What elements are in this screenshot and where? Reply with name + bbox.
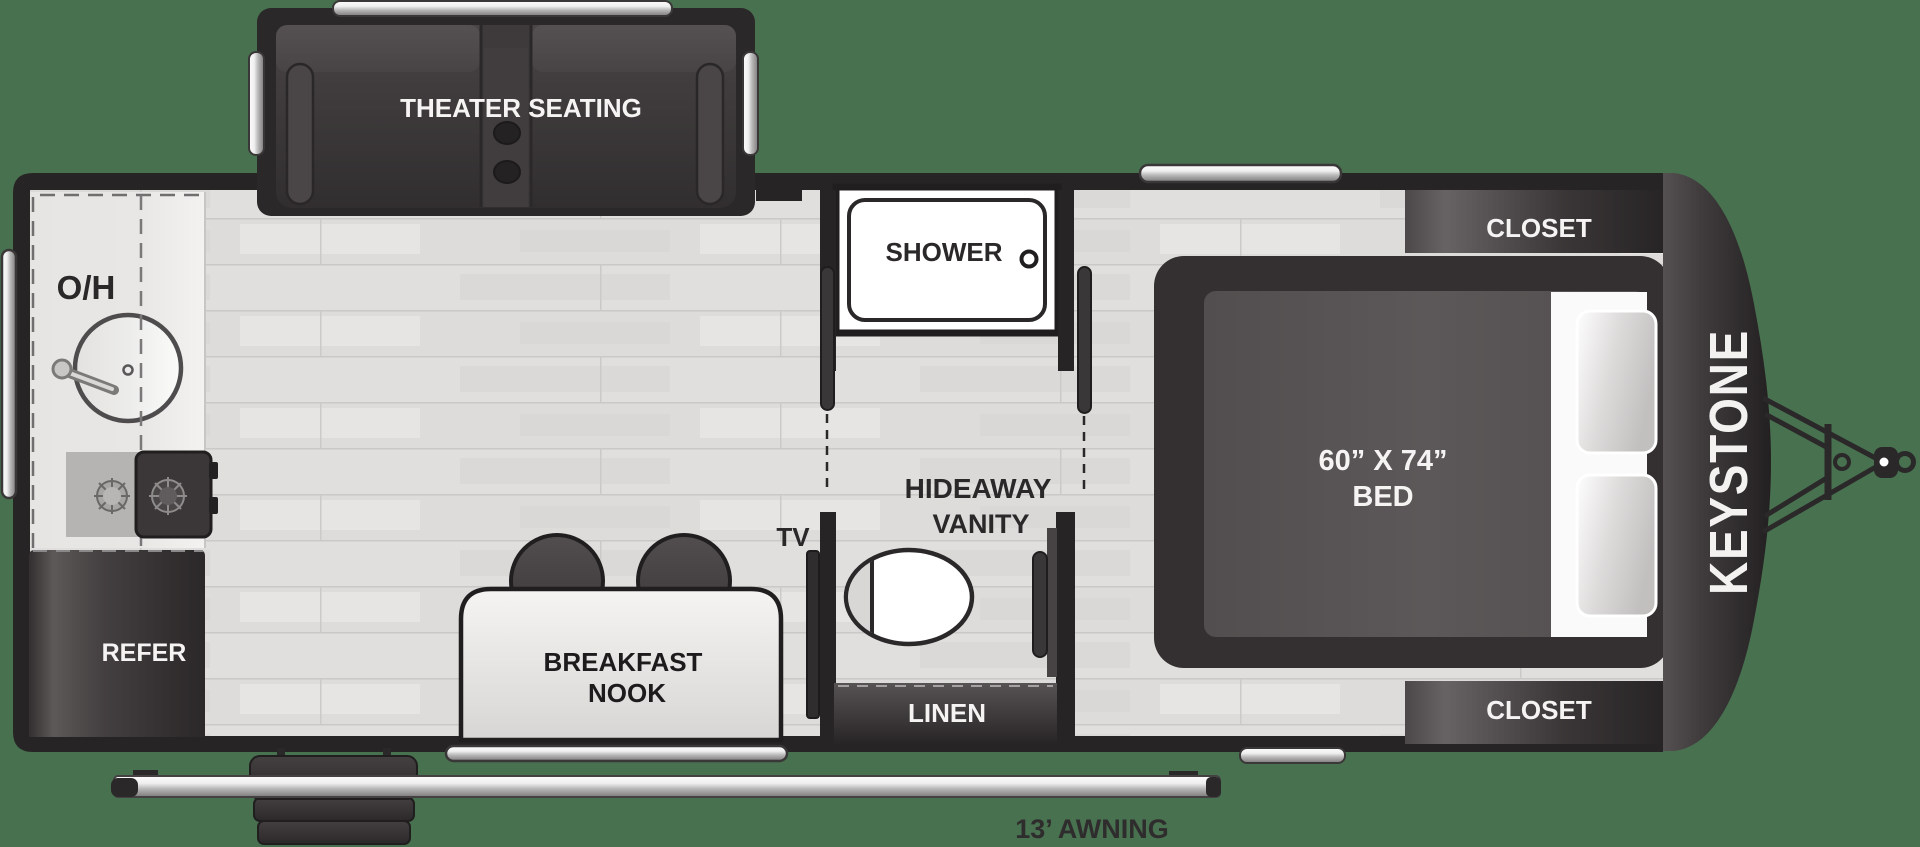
svg-text:13’ AWNING: 13’ AWNING bbox=[1015, 814, 1169, 844]
svg-text:VANITY: VANITY bbox=[932, 509, 1029, 539]
svg-text:60” X 74”: 60” X 74” bbox=[1319, 445, 1448, 477]
svg-text:O/H: O/H bbox=[57, 269, 116, 306]
svg-text:BREAKFAST: BREAKFAST bbox=[544, 647, 703, 677]
svg-text:REFER: REFER bbox=[102, 639, 187, 667]
svg-text:HIDEAWAY: HIDEAWAY bbox=[905, 473, 1052, 504]
svg-text:BED: BED bbox=[1352, 481, 1413, 513]
svg-text:CLOSET: CLOSET bbox=[1486, 213, 1592, 243]
svg-text:TV: TV bbox=[776, 522, 810, 552]
svg-text:CLOSET: CLOSET bbox=[1486, 695, 1592, 725]
svg-text:NOOK: NOOK bbox=[588, 678, 666, 708]
svg-text:KEYSTONE: KEYSTONE bbox=[1699, 329, 1759, 595]
svg-text:SHOWER: SHOWER bbox=[886, 237, 1003, 267]
svg-text:THEATER SEATING: THEATER SEATING bbox=[400, 93, 642, 123]
svg-text:LINEN: LINEN bbox=[908, 698, 986, 728]
